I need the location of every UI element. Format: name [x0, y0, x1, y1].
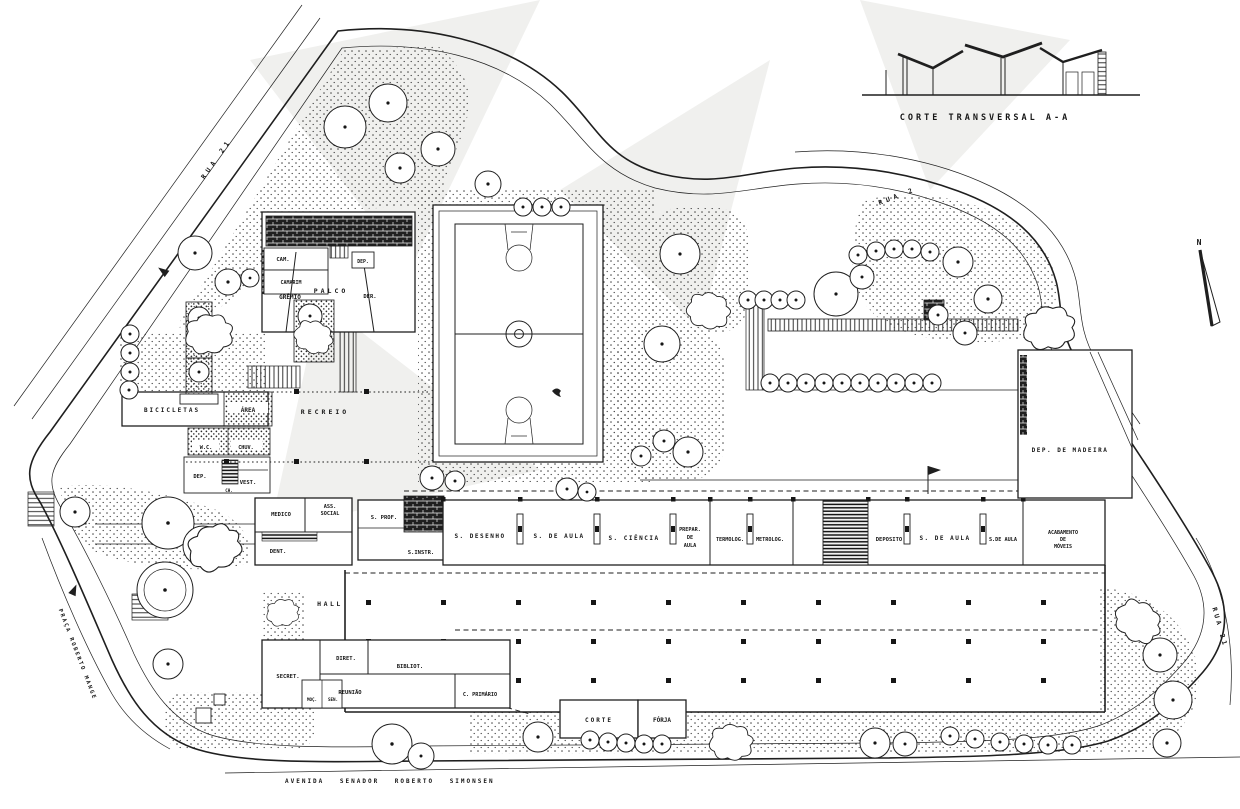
label-c-primario: C. PRIMÁRIO [463, 691, 497, 698]
label-cam: CAM. [276, 257, 289, 263]
label-prepar-l3: AULA [684, 543, 697, 549]
label-palco: PALCO [314, 287, 349, 295]
label-s-de-aula-1: S. DE AULA [533, 533, 584, 540]
label-diret: DIRET. [336, 656, 356, 662]
label-camarim: CAMARIM [280, 280, 301, 286]
label-s-prof: S. PROF. [371, 515, 398, 521]
label-acab-l1: ACABAMENTO [1048, 530, 1078, 536]
label-s-desenho: S. DESENHO [454, 533, 505, 540]
label-vest: VEST. [240, 480, 257, 486]
label-der: DER. [363, 294, 376, 300]
label-ch: CH. [225, 488, 233, 493]
label-reuniao: REUNIÃO [338, 689, 362, 696]
label-forja: FÓRJA [653, 717, 671, 724]
label-dep-palco: DEP. [357, 259, 369, 265]
stage-block [262, 212, 415, 332]
label-ass-l1: ASS. [324, 504, 337, 510]
label-prepar-l2: DE [687, 535, 693, 541]
label-hall: HALL [317, 600, 343, 608]
label-moc: MOÇ. [307, 697, 317, 702]
label-ass-l2: SOCIAL [321, 511, 340, 517]
street-label-rua-top-left: RUA 21 [199, 137, 233, 180]
label-termolog: TERMOLOG. [716, 537, 744, 543]
label-s-de-aula-3: S.DE AULA [989, 537, 1018, 543]
label-dep-madeira: DEP. DE MADEIRA [1032, 447, 1109, 454]
label-wc: W.C. [200, 445, 213, 451]
label-bibliot: BIBLIOT. [397, 664, 424, 670]
label-metrolog: METROLOG. [756, 537, 784, 543]
label-dep: DEP. [193, 474, 206, 480]
label-acab-l3: MÓVEIS [1054, 543, 1072, 550]
street-line-right [1196, 538, 1231, 705]
label-prepar-l1: PREPAR. [679, 527, 701, 533]
label-bicicletas: BICICLETAS [144, 407, 200, 414]
label-acab-l2: DE [1060, 537, 1066, 543]
basketball-court [433, 205, 603, 462]
label-area: ÁREA [241, 407, 256, 414]
label-gremio: GRÊMIO [279, 293, 301, 301]
label-medico: MEDICO [271, 512, 292, 518]
label-recreio: RECREIO [301, 408, 349, 416]
site-plan-drawing: CORTE TRANSVERSAL A-A N RUA 21 RUA 2 RUA… [0, 0, 1240, 809]
label-s-instr: S.INSTR. [408, 550, 435, 556]
label-sen: SEN. [328, 697, 338, 702]
north-label: N [1197, 238, 1202, 247]
label-deposito: DEPOSITO [876, 537, 903, 543]
section-caption: CORTE TRANSVERSAL A-A [900, 113, 1070, 123]
label-dent: DENT. [270, 549, 287, 555]
label-secret: SECRET. [276, 674, 299, 680]
label-chuv: CHUV. [238, 445, 254, 451]
label-corte: CORTE [585, 717, 613, 724]
label-s-de-aula-2: S. DE AULA [919, 535, 970, 542]
label-s-ciencia: S. CIÊNCIA [608, 534, 659, 542]
traffic-arrow-2 [68, 583, 80, 596]
north-arrow: N [1197, 238, 1220, 326]
classroom-strip [404, 491, 1105, 565]
plan-svg: CORTE TRANSVERSAL A-A N RUA 21 RUA 2 RUA… [0, 0, 1240, 809]
street-label-avenida: AVENIDA SENADOR ROBERTO SIMONSEN [285, 778, 495, 785]
